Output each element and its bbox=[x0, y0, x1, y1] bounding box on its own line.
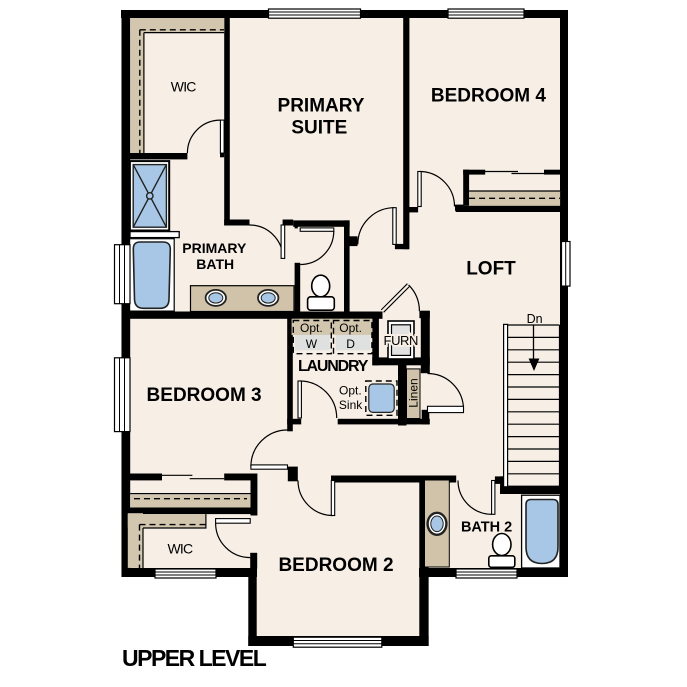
svg-text:Linen: Linen bbox=[407, 378, 421, 407]
svg-text:BATH 2: BATH 2 bbox=[461, 519, 512, 535]
svg-text:BEDROOM 3: BEDROOM 3 bbox=[147, 385, 262, 406]
svg-text:BATH: BATH bbox=[196, 256, 234, 272]
svg-text:Sink: Sink bbox=[339, 398, 363, 412]
svg-text:UPPER LEVEL: UPPER LEVEL bbox=[122, 645, 267, 671]
svg-text:Opt.: Opt. bbox=[339, 321, 362, 335]
svg-text:PRIMARY: PRIMARY bbox=[278, 95, 365, 116]
svg-text:WIC: WIC bbox=[171, 79, 197, 95]
svg-text:Opt.: Opt. bbox=[339, 383, 362, 397]
svg-text:BEDROOM 4: BEDROOM 4 bbox=[431, 86, 547, 107]
svg-text:Dn: Dn bbox=[527, 312, 543, 326]
svg-text:PRIMARY: PRIMARY bbox=[182, 240, 247, 256]
svg-text:BEDROOM 2: BEDROOM 2 bbox=[278, 555, 393, 576]
svg-text:FURN: FURN bbox=[384, 333, 419, 348]
svg-text:D: D bbox=[346, 337, 355, 351]
svg-text:W: W bbox=[306, 337, 318, 351]
svg-text:LAUNDRY: LAUNDRY bbox=[298, 358, 369, 375]
svg-text:LOFT: LOFT bbox=[466, 259, 516, 280]
svg-text:Opt.: Opt. bbox=[300, 321, 323, 335]
svg-text:SUITE: SUITE bbox=[291, 118, 347, 139]
svg-text:WIC: WIC bbox=[167, 540, 193, 556]
